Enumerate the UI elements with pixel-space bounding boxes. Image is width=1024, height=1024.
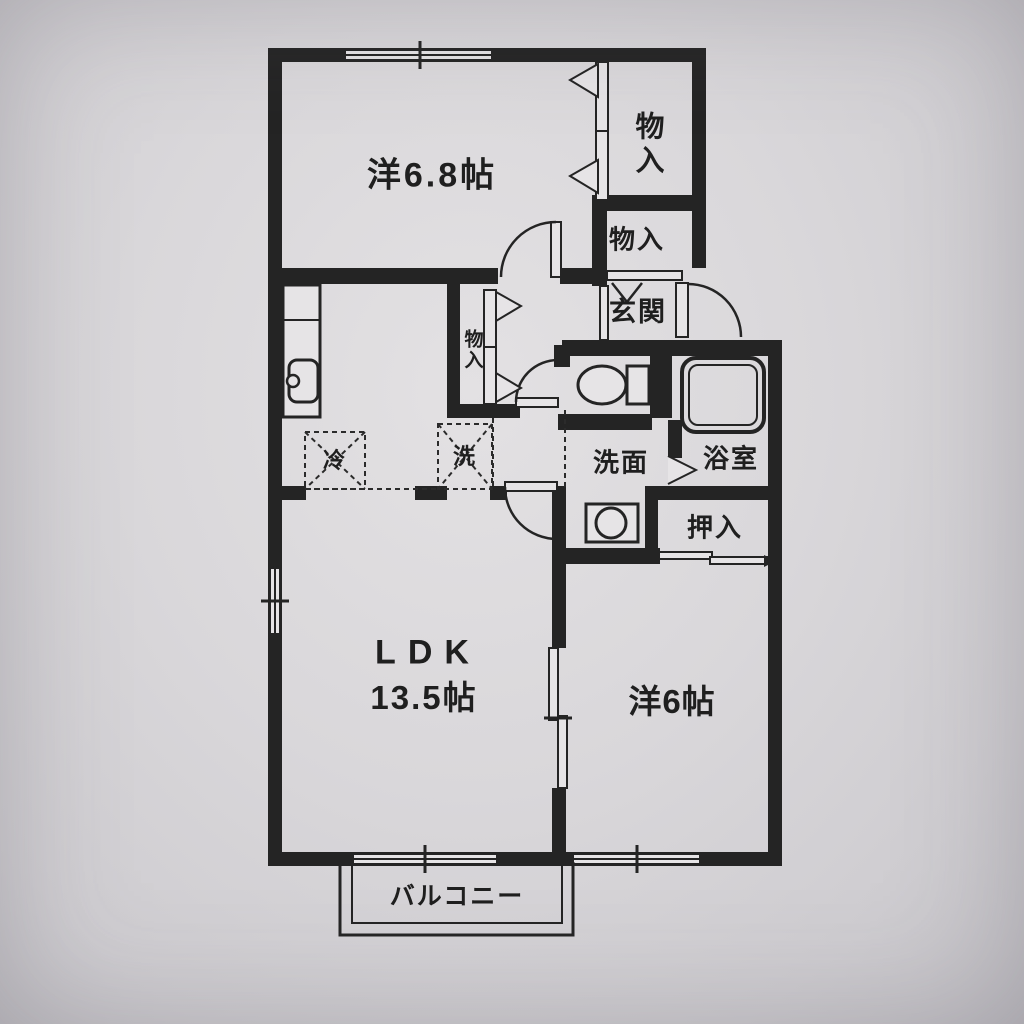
wall: [552, 486, 566, 648]
wall: [447, 404, 520, 418]
entrance-step-line: [600, 286, 608, 340]
wall: [447, 282, 460, 406]
hall-storage-bifold-door-icon: [484, 290, 521, 404]
wall: [692, 48, 706, 268]
wall: [645, 486, 782, 500]
room-label-ldk: LDK: [375, 634, 481, 671]
room-label-balcony: バルコニー: [390, 883, 525, 911]
window-top: [345, 41, 492, 69]
window-balcony-door: [353, 845, 497, 873]
kitchen-counter-icon: [283, 285, 320, 417]
closet-sliding-door-icon: [648, 549, 776, 567]
wall: [282, 486, 306, 500]
wall: [650, 356, 672, 418]
front-door-swing-icon: [676, 283, 741, 337]
washbasin-icon: [586, 504, 638, 542]
wall: [558, 548, 660, 564]
room-label-storage-hall: 物入: [461, 329, 482, 371]
room-label-washroom: 洗面: [593, 449, 649, 478]
wall: [552, 788, 566, 852]
wall: [668, 420, 682, 458]
ldk-door-swing-icon: [505, 482, 557, 539]
wall: [562, 340, 782, 356]
storage-top-bifold-door-icon: [570, 62, 608, 200]
wall: [558, 414, 652, 430]
bathroom-folding-door-icon: [668, 456, 696, 484]
window-bedroom2: [573, 845, 700, 873]
room-label-storage-mid: 物入: [609, 226, 665, 255]
room-label-bathroom: 浴室: [703, 445, 759, 474]
window-left: [261, 568, 289, 634]
bedroom1-door-swing-icon: [501, 222, 561, 277]
wall: [560, 268, 607, 284]
room-label-ldk-area: 13.5帖: [370, 680, 477, 716]
partition-sliding-door-icon: [544, 648, 572, 788]
floor-plan-drawing: [0, 0, 1024, 1024]
fixtures: [283, 285, 764, 935]
wall: [268, 268, 498, 284]
wall: [645, 498, 658, 560]
bathtub-icon: [682, 358, 764, 432]
toilet-door-swing-icon: [516, 360, 558, 407]
wall: [268, 852, 782, 866]
room-label-storage-top: 物入: [630, 111, 662, 179]
label-refrigerator: 冷: [323, 449, 345, 473]
toilet-icon: [578, 366, 649, 404]
wall: [554, 345, 570, 367]
room-label-bedroom2: 洋6帖: [628, 684, 715, 720]
floor-plan-photo: 洋6.8帖 物入 物入 玄関 物入 洗面 浴室 押入 冷 洗 LDK 13.5帖…: [0, 0, 1024, 1024]
corridor-open-boundary: [493, 410, 565, 487]
wall: [768, 340, 782, 866]
room-label-bedroom1: 洋6.8帖: [367, 157, 497, 194]
wall: [268, 48, 282, 866]
room-label-closet: 押入: [687, 514, 743, 543]
room-label-entrance: 玄関: [609, 298, 667, 328]
label-washer: 洗: [453, 445, 475, 469]
